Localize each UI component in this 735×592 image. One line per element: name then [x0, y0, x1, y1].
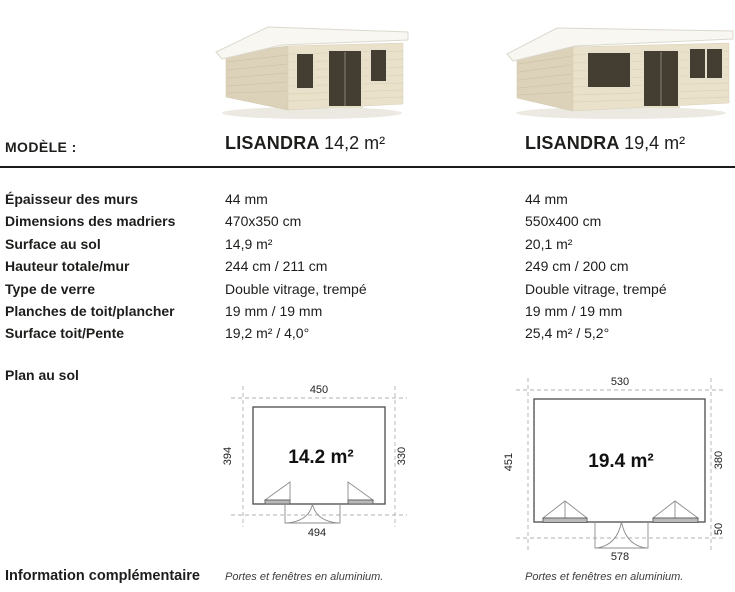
model-size: 14,2 m² [324, 133, 385, 153]
footer-label: Information complémentaire [5, 568, 200, 584]
cabin-photo-lisandra-19 [503, 0, 735, 125]
area-label: 19.4 m² [588, 451, 653, 472]
window [370, 49, 387, 82]
dim-overhang-right: 50 [713, 523, 725, 535]
spec-value: 14,9 m² [225, 233, 525, 255]
dim-depth-left: 451 [503, 453, 515, 471]
spec-label: Type de verre [5, 278, 225, 300]
spec-value: 19 mm / 19 mm [225, 300, 525, 322]
model-name: LISANDRA [525, 133, 620, 153]
double-window [689, 48, 723, 79]
spec-value: 249 cm / 200 cm [525, 255, 733, 277]
window [296, 53, 314, 89]
spec-value: 550x400 cm [525, 210, 733, 232]
spec-value: 25,4 m² / 5,2° [525, 322, 733, 344]
window [587, 52, 631, 88]
spec-table: Épaisseur des murs 44 mm 44 mm Dimension… [5, 188, 733, 345]
spec-label: Épaisseur des murs [5, 188, 225, 210]
spec-label: Planches de toit/plancher [5, 300, 225, 322]
model-row-label: MODÈLE : [5, 139, 77, 155]
spec-value: Double vitrage, trempé [225, 278, 525, 300]
dim-width-top: 450 [310, 384, 328, 396]
spec-label: Surface toit/Pente [5, 322, 225, 344]
footer-note-1: Portes et fenêtres en aluminium. [225, 571, 383, 583]
table-row: Surface au sol 14,9 m² 20,1 m² [5, 233, 733, 255]
spec-label: Dimensions des madriers [5, 210, 225, 232]
model-header-1: LISANDRA 14,2 m² [225, 133, 385, 154]
model-header-2: LISANDRA 19,4 m² [525, 133, 685, 154]
dim-depth-right: 380 [713, 451, 725, 469]
spec-value: 44 mm [525, 188, 733, 210]
dim-width-bottom: 494 [308, 527, 326, 539]
spec-value: Double vitrage, trempé [525, 278, 733, 300]
table-row: Planches de toit/plancher 19 mm / 19 mm … [5, 300, 733, 322]
window-glyph [348, 482, 373, 504]
double-door [643, 50, 679, 107]
spec-label: Hauteur totale/mur [5, 255, 225, 277]
window-glyph [653, 501, 698, 523]
ground-shadow [516, 107, 726, 119]
door-swing [595, 522, 648, 548]
dim-width-bottom: 578 [611, 551, 629, 563]
plan-section-label: Plan au sol [5, 367, 79, 383]
table-row: Dimensions des madriers 470x350 cm 550x4… [5, 210, 733, 232]
dim-depth-right: 330 [396, 447, 408, 465]
spec-value: 470x350 cm [225, 210, 525, 232]
area-label: 14.2 m² [288, 447, 353, 468]
product-spec-sheet: MODÈLE : LISANDRA 14,2 m² LISANDRA 19,4 … [0, 0, 735, 592]
spec-value: 244 cm / 211 cm [225, 255, 525, 277]
spec-value: 44 mm [225, 188, 525, 210]
table-row: Épaisseur des murs 44 mm 44 mm [5, 188, 733, 210]
window-glyph [265, 482, 290, 504]
cabin-photo-lisandra-14 [210, 0, 410, 125]
spec-value: 19,2 m² / 4,0° [225, 322, 525, 344]
table-row: Surface toit/Pente 19,2 m² / 4,0° 25,4 m… [5, 322, 733, 344]
spec-label: Surface au sol [5, 233, 225, 255]
floor-plan-lisandra-19: 530 451 380 50 578 19.4 m² [498, 370, 735, 570]
floor-plan-lisandra-14: 450 394 330 494 14.2 m² [215, 370, 415, 545]
double-door [328, 50, 362, 107]
table-row: Type de verre Double vitrage, trempé Dou… [5, 278, 733, 300]
footer-note-2: Portes et fenêtres en aluminium. [525, 571, 683, 583]
header-divider [0, 166, 735, 168]
model-size: 19,4 m² [624, 133, 685, 153]
dim-width-top: 530 [611, 376, 629, 388]
spec-value: 19 mm / 19 mm [525, 300, 733, 322]
dim-depth-left: 394 [222, 447, 234, 465]
spec-value: 20,1 m² [525, 233, 733, 255]
door-swing [285, 504, 340, 523]
model-name: LISANDRA [225, 133, 320, 153]
table-row: Hauteur totale/mur 244 cm / 211 cm 249 c… [5, 255, 733, 277]
window-glyph [543, 501, 587, 523]
